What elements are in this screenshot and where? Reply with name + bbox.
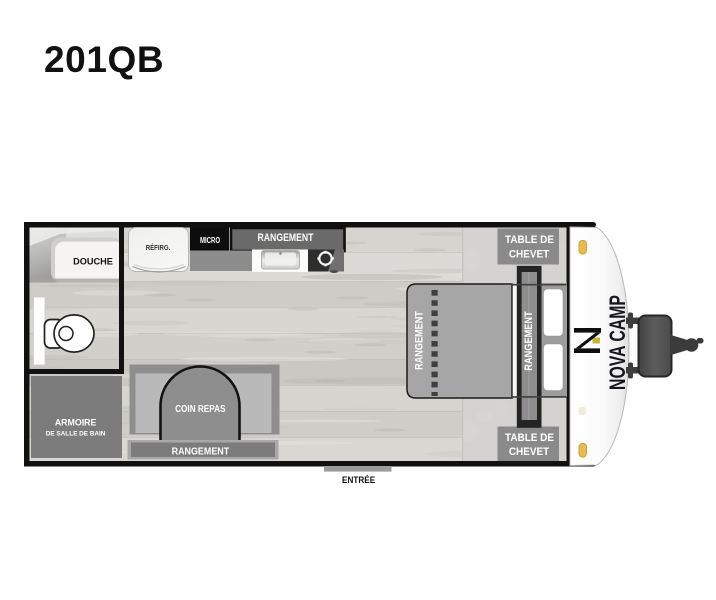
svg-text:TABLE DE: TABLE DE	[505, 433, 554, 444]
svg-text:ARMOIRE: ARMOIRE	[55, 417, 97, 427]
svg-text:RÉFIRG.: RÉFIRG.	[146, 243, 171, 253]
svg-text:COIN REPAS: COIN REPAS	[175, 402, 225, 414]
svg-text:CHEVET: CHEVET	[509, 249, 550, 260]
svg-text:NOVA CAMP: NOVA CAMP	[607, 295, 631, 390]
svg-text:DE SALLE DE BAIN: DE SALLE DE BAIN	[46, 430, 106, 437]
svg-text:TABLE DE: TABLE DE	[505, 235, 554, 246]
svg-text:RANGEMENT: RANGEMENT	[414, 310, 426, 370]
svg-text:ENTRÉE: ENTRÉE	[342, 474, 375, 485]
svg-text:RANGEMENT: RANGEMENT	[523, 311, 535, 371]
svg-text:RANGEMENT: RANGEMENT	[172, 446, 230, 458]
svg-text:CHEVET: CHEVET	[509, 447, 550, 458]
svg-text:RANGEMENT: RANGEMENT	[258, 232, 314, 244]
svg-text:MICRO: MICRO	[200, 235, 220, 245]
svg-text:DOUCHE: DOUCHE	[73, 257, 113, 267]
